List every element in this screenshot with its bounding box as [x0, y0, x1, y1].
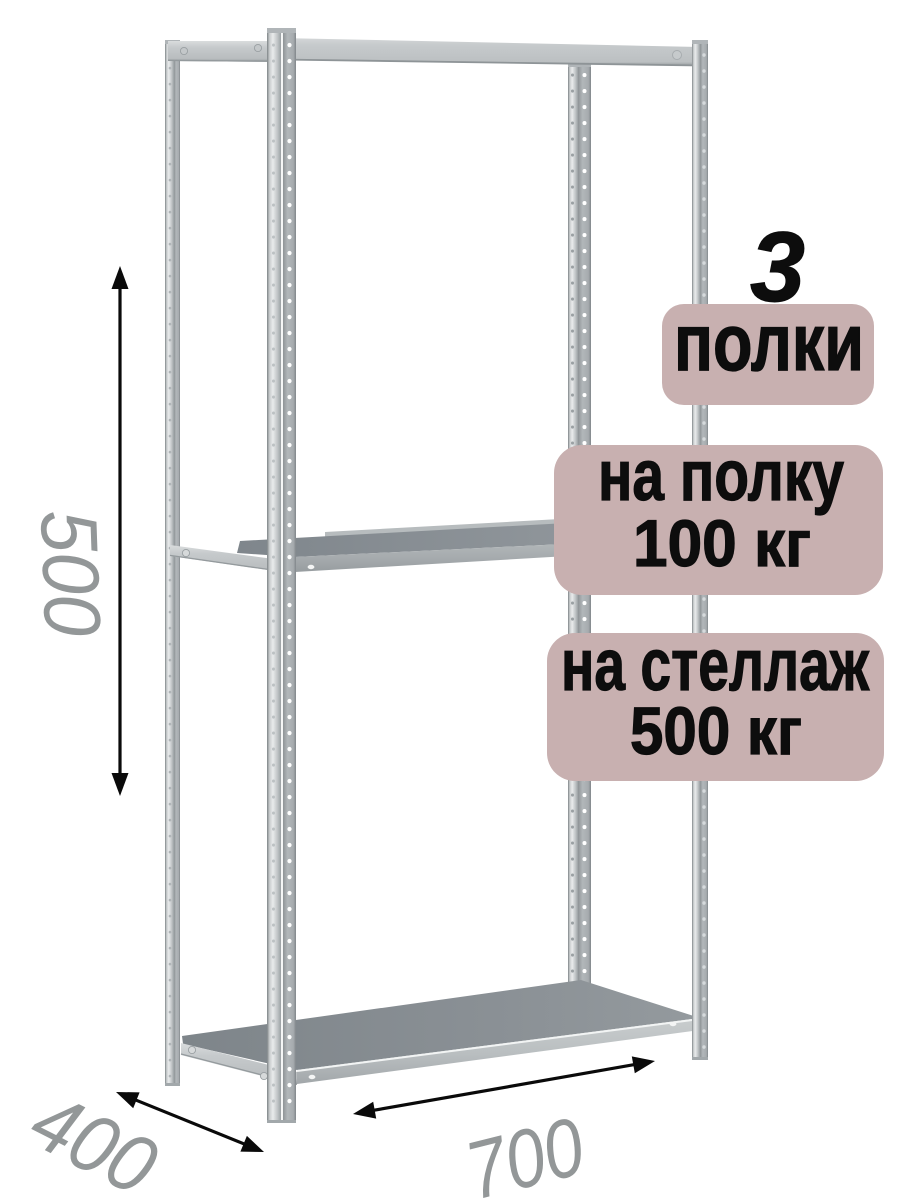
svg-text:500 кг: 500 кг [630, 694, 802, 769]
svg-text:100 кг: 100 кг [633, 506, 811, 580]
svg-text:на полку: на полку [598, 437, 844, 516]
svg-text:полки: полки [674, 298, 864, 388]
svg-text:500: 500 [24, 508, 117, 637]
